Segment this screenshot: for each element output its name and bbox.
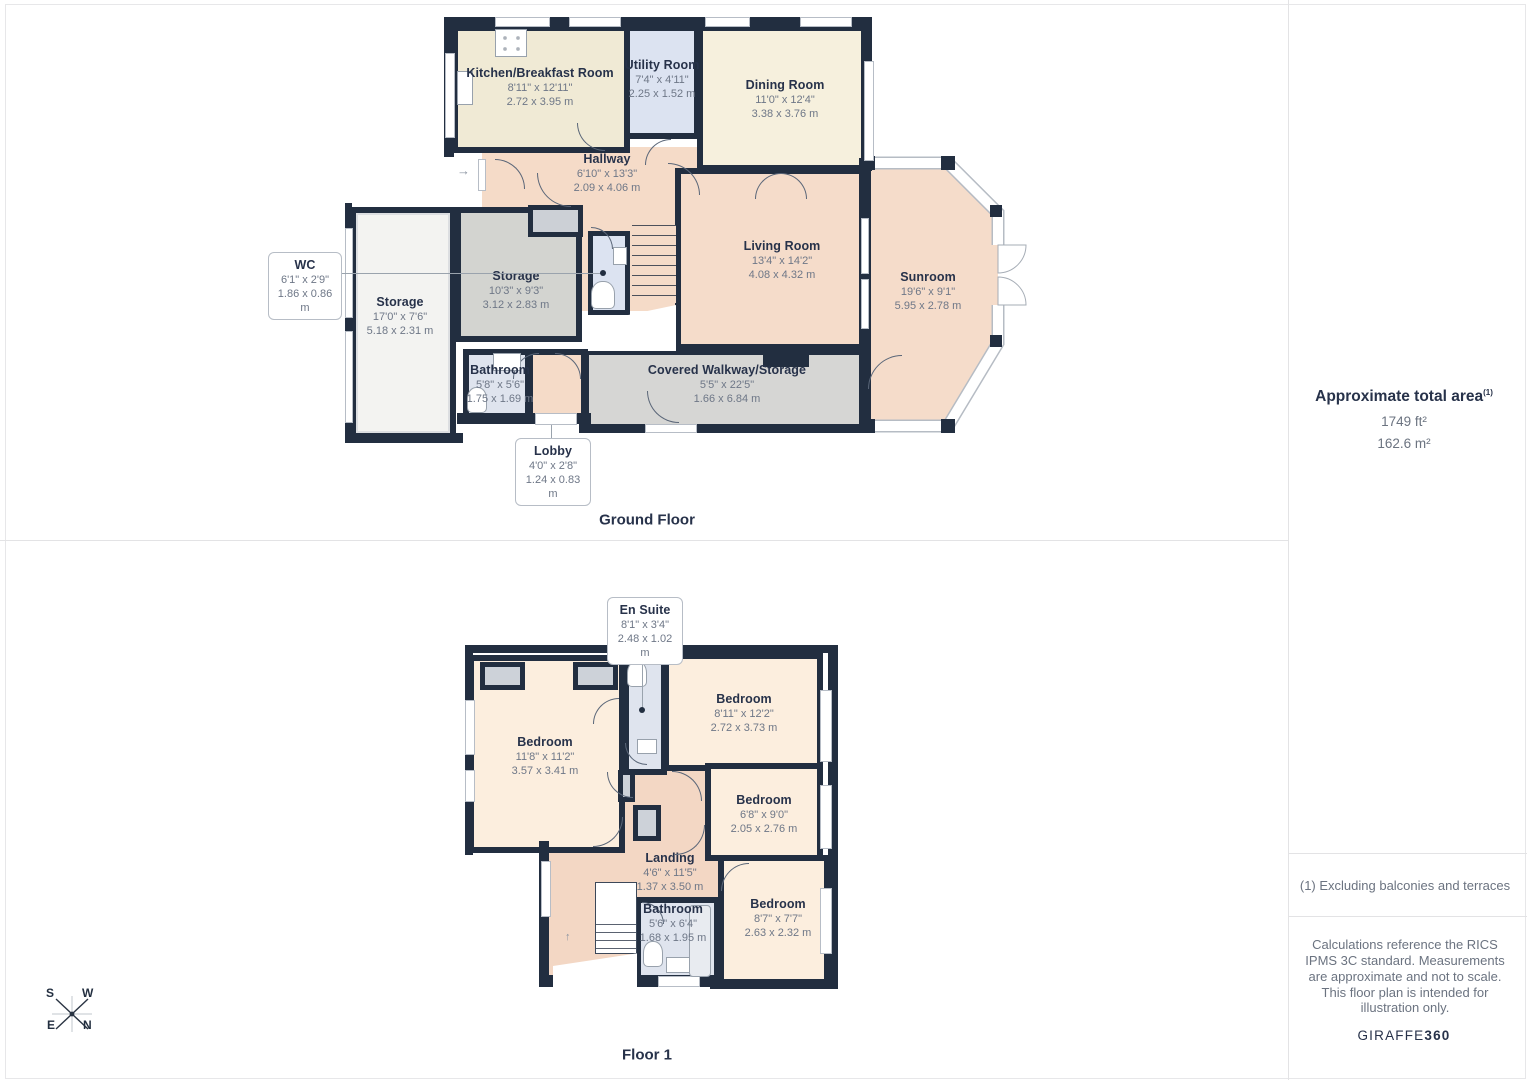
- entry-opening: [478, 159, 486, 191]
- sink-icon: [637, 739, 657, 754]
- window: [820, 785, 832, 849]
- room-label-bedroom-3: Bedroom 6'8" x 9'0" 2.05 x 2.76 m: [731, 792, 798, 836]
- closet: [573, 662, 618, 690]
- ensuite-callout: En Suite 8'1" x 3'4" 2.48 x 1.02 m: [607, 597, 683, 665]
- stairs-floor1: [595, 882, 637, 954]
- entry-arrow-icon: →: [457, 163, 470, 178]
- lobby-opening: [535, 413, 577, 425]
- window: [465, 700, 475, 755]
- room-label-bathroom-1: Bathroom 5'6" x 6'4" 1.68 x 1.95 m: [640, 901, 707, 945]
- area-ft-value: 1749 ft²: [1381, 414, 1427, 429]
- wall: [345, 433, 463, 443]
- window: [820, 690, 832, 762]
- window: [569, 17, 621, 27]
- floor-1-title: Floor 1: [622, 1047, 672, 1064]
- room-label-landing: Landing 4'6" x 11'5" 1.37 x 3.50 m: [637, 850, 704, 894]
- room-label-bedroom-1: Bedroom 11'8" x 11'2" 3.57 x 3.41 m: [512, 734, 579, 778]
- window: [861, 218, 869, 274]
- total-area-title: Approximate total area(1): [1315, 388, 1493, 406]
- floorplan-page: → Kitchen/Breakfast Room 8'11" x 12'11" …: [0, 0, 1527, 1080]
- room-label-storage-large: Storage 17'0" x 7'6" 5.18 x 2.31 m: [367, 294, 434, 338]
- window: [820, 888, 832, 954]
- compass-s: S: [46, 986, 54, 1000]
- wc-leader-dot: [600, 270, 606, 276]
- wall: [579, 424, 869, 433]
- ground-floor-plan: → Kitchen/Breakfast Room 8'11" x 12'11" …: [345, 13, 1037, 483]
- ground-floor-title: Ground Floor: [599, 512, 695, 529]
- compass-w: W: [82, 986, 93, 1000]
- window: [495, 17, 550, 27]
- wall: [710, 979, 838, 989]
- window: [345, 331, 353, 423]
- window: [445, 53, 455, 138]
- compass-e: E: [47, 1018, 55, 1032]
- room-label-bedroom-2: Bedroom 8'11" x 12'2" 2.72 x 3.73 m: [711, 691, 778, 735]
- window: [861, 279, 869, 329]
- wc-leader-line: [340, 273, 603, 274]
- compass-n: N: [83, 1018, 92, 1032]
- window: [658, 976, 700, 987]
- window: [541, 861, 551, 917]
- compass-icon: S W E N: [40, 988, 104, 1040]
- room-label-bathroom-ground: Bathroom 5'8" x 5'6" 1.75 x 1.69 m: [467, 362, 534, 406]
- window: [465, 770, 475, 802]
- window: [800, 17, 852, 27]
- closet: [480, 662, 525, 690]
- room-label-living: Living Room 13'4" x 14'2" 4.08 x 4.32 m: [744, 238, 821, 282]
- room-label-hallway: Hallway 6'10" x 13'3" 2.09 x 4.06 m: [574, 151, 641, 195]
- wc-callout: WC 6'1" x 2'9" 1.86 x 0.86 m: [268, 252, 342, 320]
- sidebar-border: [1288, 0, 1289, 1080]
- room-label-dining: Dining Room 11'0" x 12'4" 3.38 x 3.76 m: [746, 77, 825, 121]
- floor-1-plan: ↑ Bedroom 11'8" x 11'2" 3.57 x 3.41 m: [465, 645, 845, 992]
- walkway-opening: [645, 424, 697, 433]
- room-label-bedroom-4: Bedroom 8'7" x 7'7" 2.63 x 2.32 m: [745, 896, 812, 940]
- stairs-up-arrow-icon: ↑: [565, 931, 571, 943]
- sidebar-divider-1: [1288, 853, 1527, 854]
- sink-icon: [613, 247, 627, 265]
- disclaimer-text: Calculations reference the RICS IPMS 3C …: [1305, 937, 1505, 1016]
- cupboard: [633, 805, 661, 841]
- hob-icon: [495, 29, 527, 57]
- area-m-value: 162.6 m²: [1377, 436, 1430, 451]
- ensuite-leader-dot: [639, 707, 645, 713]
- giraffe360-logo: GIRAFFE360: [1357, 1028, 1450, 1043]
- lobby-callout: Lobby 4'0" x 2'8" 1.24 x 0.83 m: [515, 438, 591, 506]
- lobby-leader-line: [551, 425, 552, 439]
- room-label-sunroom: Sunroom 19'6" x 9'1" 5.95 x 2.78 m: [895, 269, 962, 313]
- panel-divider: [0, 540, 1288, 541]
- room-label-utility: Utility Room 7'4" x 4'11" 2.25 x 1.52 m: [625, 57, 700, 101]
- room-label-kitchen: Kitchen/Breakfast Room 8'11" x 12'11" 2.…: [466, 65, 613, 109]
- toilet-icon: [591, 281, 615, 309]
- footnote-ref: (1): [1483, 388, 1493, 397]
- room-label-walkway: Covered Walkway/Storage 5'5" x 22'5" 1.6…: [648, 362, 806, 406]
- room-label-storage-small: Storage 10'3" x 9'3" 3.12 x 2.83 m: [483, 268, 550, 312]
- stairs-ground: [632, 225, 676, 303]
- sidebar-divider-2: [1288, 916, 1527, 917]
- window: [864, 61, 874, 161]
- footnote-text: (1) Excluding balconies and terraces: [1300, 878, 1510, 893]
- hall-cupboard: [528, 205, 583, 237]
- window: [705, 17, 750, 27]
